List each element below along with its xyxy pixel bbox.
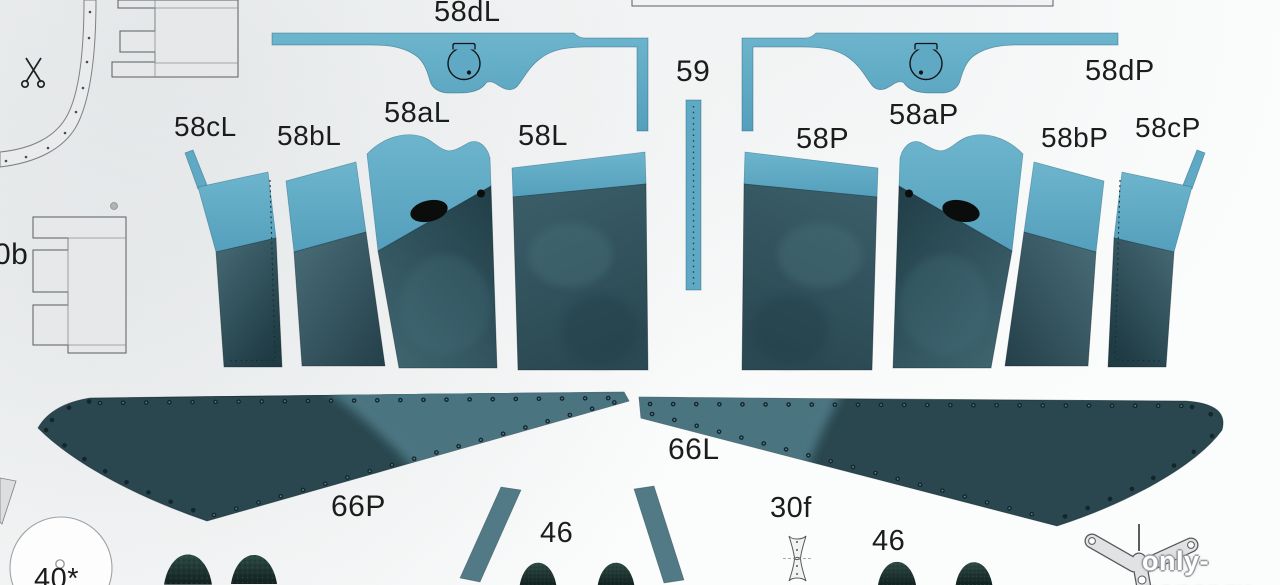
part-frame-outline — [0, 0, 96, 167]
part-label-58aP: 58aP — [889, 101, 959, 130]
watermark: only-paper.ru — [1142, 546, 1280, 585]
part-label-46-right: 46 — [872, 527, 905, 556]
part-cone — [520, 563, 557, 585]
part-label-66P: 66P — [331, 492, 386, 522]
part-strip-46 — [634, 486, 684, 583]
part-former-comb-0b — [33, 203, 126, 354]
part-cone — [878, 562, 916, 585]
part-strip-46 — [460, 487, 521, 582]
part-label-0b: 0b — [0, 240, 28, 270]
parts-drawing — [0, 0, 1280, 585]
part-cone — [164, 554, 212, 584]
part-cone — [598, 563, 635, 585]
part-label-58L: 58L — [518, 122, 568, 151]
part-label-58cL: 58cL — [174, 113, 237, 141]
part-label-58dL: 58dL — [434, 0, 501, 27]
part-label-46-left: 46 — [540, 519, 573, 548]
part-30f-shape — [783, 536, 812, 581]
part-cone — [956, 562, 993, 585]
paper-model-sheet: 58dL 59 58dP 58cL 58bL 58aL 58L 58P 58aP… — [0, 0, 1280, 585]
part-former-comb-top — [112, 0, 238, 77]
part-cone — [231, 555, 277, 584]
part-label-58cP: 58cP — [1135, 114, 1201, 142]
scissors-icon — [22, 58, 44, 87]
part-label-58dP: 58dP — [1085, 57, 1155, 86]
registration-dot — [111, 203, 118, 210]
part-label-40: 40* — [34, 565, 79, 585]
part-top-edge-strip — [632, 0, 1053, 6]
part-label-59: 59 — [676, 57, 710, 87]
part-label-58aL: 58aL — [384, 99, 451, 128]
left-panel-group — [185, 33, 648, 370]
part-label-58bP: 58bP — [1041, 124, 1108, 152]
part-label-30f: 30f — [770, 494, 812, 523]
part-label-58P: 58P — [796, 125, 849, 154]
part-label-58bL: 58bL — [277, 122, 341, 150]
part-59-strip — [686, 100, 701, 290]
part-label-66L: 66L — [668, 435, 720, 465]
part-corner-wedge — [0, 478, 16, 524]
